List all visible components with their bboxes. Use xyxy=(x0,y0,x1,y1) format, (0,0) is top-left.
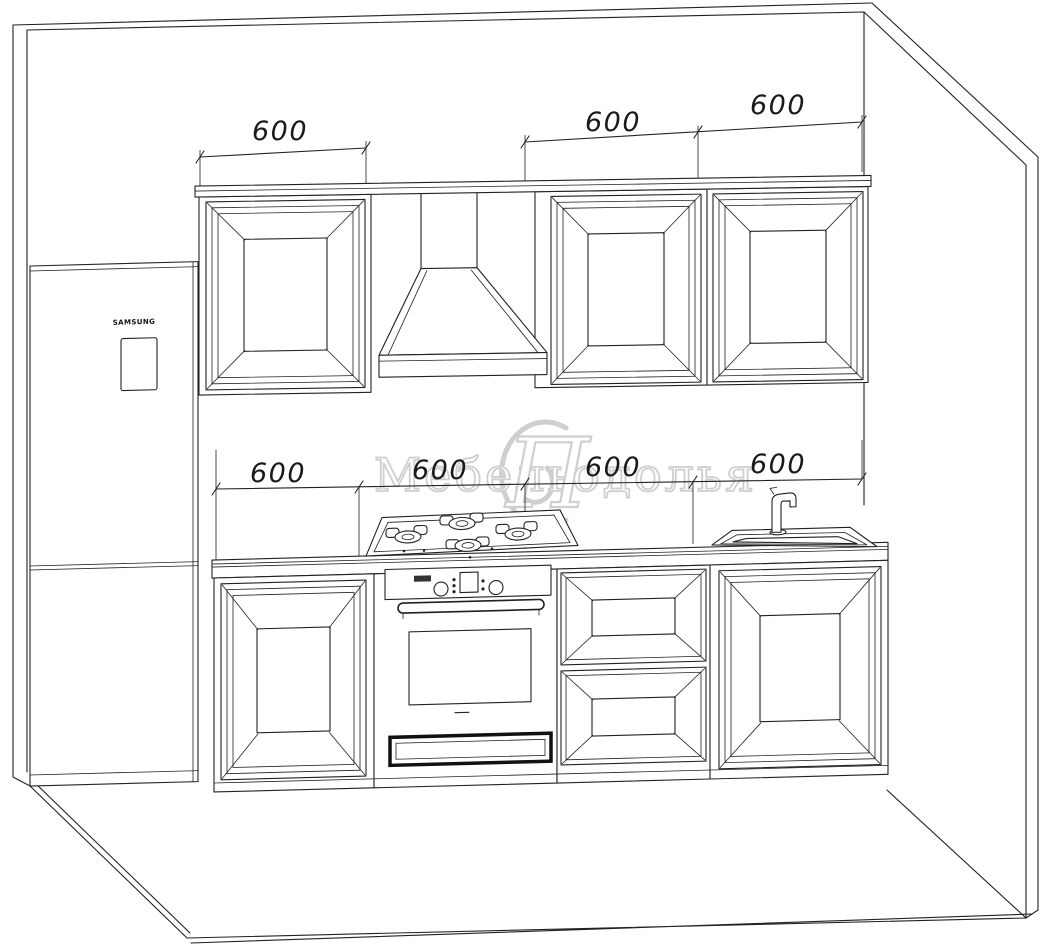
door-panel xyxy=(257,627,330,733)
left-wall xyxy=(13,25,30,786)
base-cabinet-row xyxy=(212,484,888,792)
wall-cabinet-3-door xyxy=(713,192,863,382)
fridge-body xyxy=(30,262,198,786)
fridge: SAMSUNG xyxy=(30,262,198,786)
burner-ring xyxy=(395,531,421,544)
oven-brand-label xyxy=(414,575,431,581)
oven-vent-drawer xyxy=(390,733,551,765)
wall-cabinet-2-door xyxy=(551,194,701,384)
hood-canopy xyxy=(379,267,547,356)
dimension-label: 600 xyxy=(750,449,806,480)
door-panel xyxy=(760,614,840,722)
burner-ring xyxy=(449,517,475,530)
oven-door-window xyxy=(409,629,531,705)
fridge-brand-label: SAMSUNG xyxy=(113,318,156,327)
range-hood xyxy=(379,192,547,378)
wall-cabinet-1-door xyxy=(206,199,365,389)
base-cabinet-left-door xyxy=(221,580,366,780)
dimension-label: 600 xyxy=(250,458,306,489)
floor-edges xyxy=(30,782,1032,943)
burner-ring xyxy=(505,528,531,541)
burner-ring xyxy=(455,539,481,552)
hood-base-band xyxy=(379,353,547,378)
door-panel xyxy=(244,238,327,351)
dimensions-top: 600 600 600 xyxy=(196,90,866,186)
door-panel xyxy=(588,233,664,346)
drawing-svg: Мебель П одолья xyxy=(0,0,1048,947)
door-panel xyxy=(750,230,826,343)
dimension-label: 600 xyxy=(750,90,806,121)
oven-knob xyxy=(489,580,503,594)
faucet xyxy=(770,487,796,535)
wall-cabinet-row xyxy=(195,175,871,395)
dimension-label: 600 xyxy=(585,452,641,483)
drawer-top xyxy=(561,569,706,665)
dimension-label: 600 xyxy=(585,107,641,138)
hood-duct xyxy=(421,193,477,269)
oven xyxy=(385,565,551,765)
dimension-label: 600 xyxy=(252,116,308,147)
sink-cabinet-door xyxy=(719,567,881,769)
right-wall xyxy=(864,3,1038,918)
drawer-panel xyxy=(592,697,675,736)
kitchen-elevation-drawing: Мебель П одолья xyxy=(0,0,1048,947)
faucet-body xyxy=(772,493,796,533)
drawer-bottom xyxy=(561,667,706,765)
fridge-display-panel xyxy=(121,338,157,391)
oven-display xyxy=(460,572,478,592)
faucet-lever xyxy=(770,487,777,494)
dimension-label: 600 xyxy=(412,455,468,486)
oven-knob xyxy=(434,582,448,596)
drawer-panel xyxy=(592,598,675,636)
